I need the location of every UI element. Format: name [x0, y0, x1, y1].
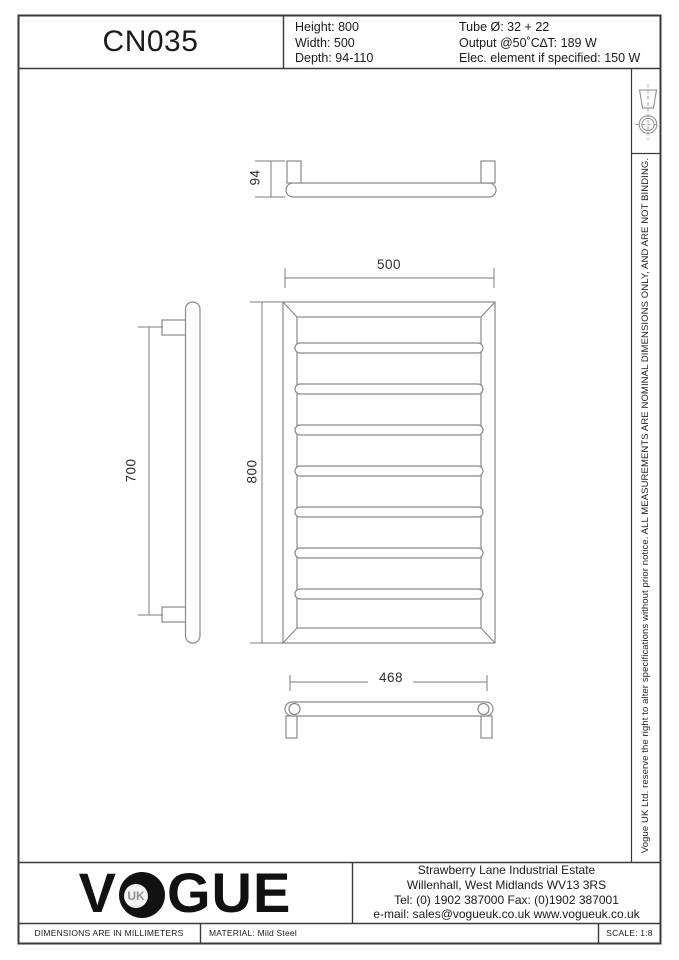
side-view [162, 302, 200, 643]
address-line-1: Strawberry Lane Industrial Estate [418, 863, 595, 878]
scale-note: SCALE: 1:8 [598, 923, 661, 943]
bottom-view-tube-section-left [289, 704, 300, 715]
model-number: CN035 [18, 15, 283, 68]
dim-fixing-vertical-lines [138, 327, 163, 615]
company-address: Strawberry Lane Industrial Estate Willen… [352, 862, 661, 923]
bottom-view-bracket-left [286, 716, 297, 738]
disclaimer-note: Vogue UK Ltd. reserve the right to alter… [636, 153, 656, 858]
front-view-rung [295, 589, 483, 599]
top-view [286, 161, 496, 197]
front-view-rung [295, 466, 483, 476]
bottom-view [285, 702, 493, 738]
spec-depth: Depth: 94-110 [295, 51, 373, 67]
projection-symbol-icon [636, 84, 661, 140]
sheet-linework [0, 0, 679, 960]
dim-width-label: 500 [367, 257, 411, 272]
units-note: DIMENSIONS ARE IN MILLIMETERS [18, 923, 200, 943]
bottom-view-rail [285, 702, 493, 716]
logo-text-v: V [79, 865, 117, 921]
address-line-3: Tel: (0) 1902 387000 Fax: (0)1902 387001 [394, 893, 619, 908]
front-view-rung [295, 507, 483, 517]
front-view-rung [295, 384, 483, 394]
side-view-tube [186, 302, 201, 643]
dim-depth-label: 94 [248, 156, 263, 200]
spec-height: Height: 800 [295, 20, 373, 36]
side-view-bracket-bottom [162, 607, 188, 622]
vogue-logo: V UK GUE [18, 862, 352, 923]
dim-fixing-vertical-label: 700 [124, 449, 139, 493]
top-view-bracket-right [481, 161, 495, 183]
side-view-bracket-top [162, 320, 188, 335]
spec-elec-element: Elec. element if specified: 150 W [459, 51, 640, 67]
material-note: MATERIAL: Mild Steel [200, 923, 598, 943]
bottom-view-tube-section-right [478, 704, 489, 715]
address-line-2: Willenhall, West Midlands WV13 3RS [407, 878, 606, 893]
logo-o-mark: UK [119, 872, 165, 918]
spec-column-left: Height: 800 Width: 500 Depth: 94-110 [295, 20, 373, 67]
spec-column-right: Tube Ø: 32 + 22 Output @50˚C∆T: 189 W El… [459, 20, 640, 67]
bottom-view-bracket-right [481, 716, 492, 738]
front-view-rung [295, 343, 483, 353]
top-view-rail [286, 183, 496, 197]
logo-uk-badge: UK [124, 884, 148, 908]
spec-output: Output @50˚C∆T: 189 W [459, 36, 640, 52]
dim-fixing-horizontal-label: 468 [369, 670, 413, 685]
spec-width: Width: 500 [295, 36, 373, 52]
logo-text-gue: GUE [167, 865, 291, 921]
spec-tube-diameter: Tube Ø: 32 + 22 [459, 20, 640, 36]
front-view-rung [295, 425, 483, 435]
dim-height-label: 800 [245, 450, 260, 494]
front-view-rung [295, 548, 483, 558]
front-view [283, 302, 495, 643]
address-line-4: e-mail: sales@vogueuk.co.uk www.vogueuk.… [373, 907, 639, 922]
top-view-bracket-left [287, 161, 301, 183]
drawing-sheet: CN035 Height: 800 Width: 500 Depth: 94-1… [0, 0, 679, 960]
